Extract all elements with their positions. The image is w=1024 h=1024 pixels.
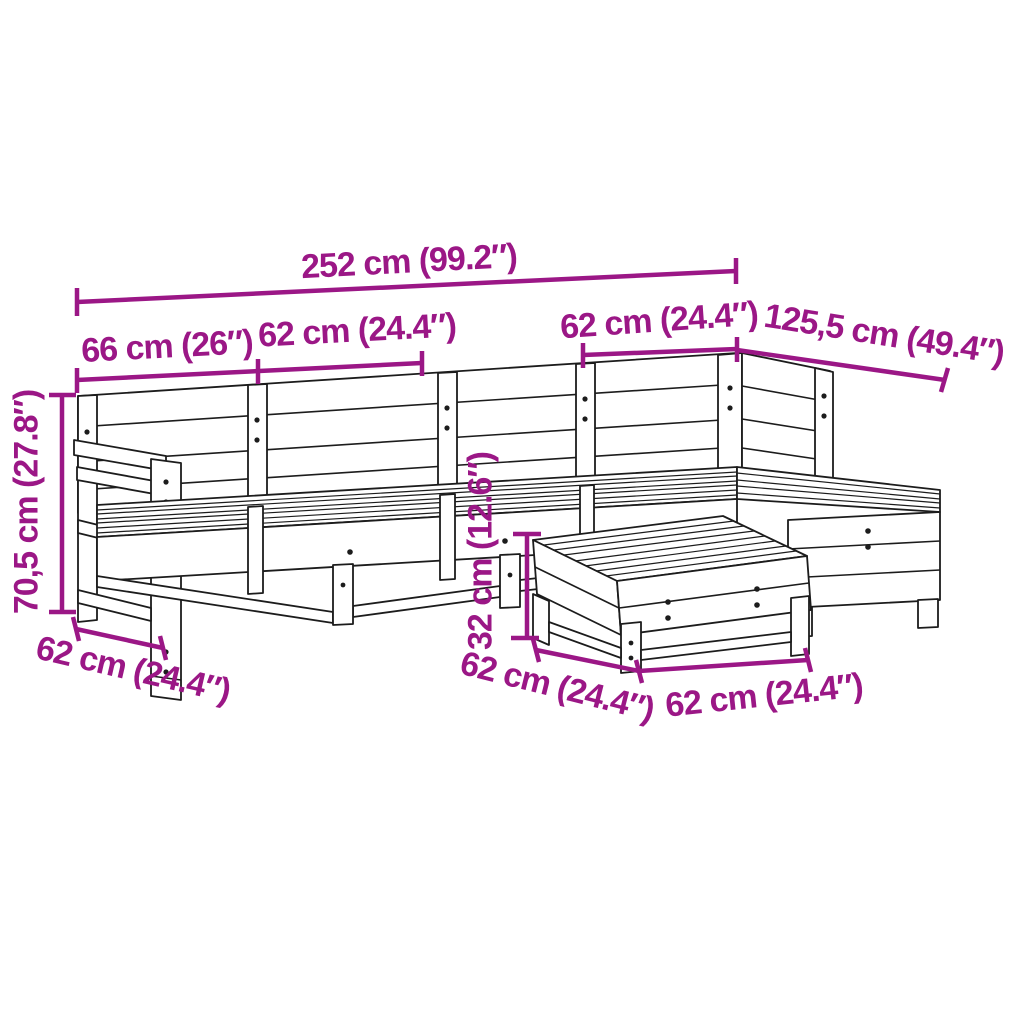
sofa-line-drawing [0, 0, 1024, 1024]
diagram-canvas: 252 cm (99.2″) 66 cm (26″) 62 cm (24.4″)… [0, 0, 1024, 1024]
footstool [533, 516, 811, 673]
chaise-seat-slats [737, 467, 940, 512]
dim-label-total-height: 70,5 cm (27.8″) [8, 390, 47, 614]
dim-label-footstool-height: 32 cm (12.6″) [462, 452, 501, 650]
dim-line-total-height [49, 395, 76, 612]
chaise-ottoman [788, 512, 940, 637]
